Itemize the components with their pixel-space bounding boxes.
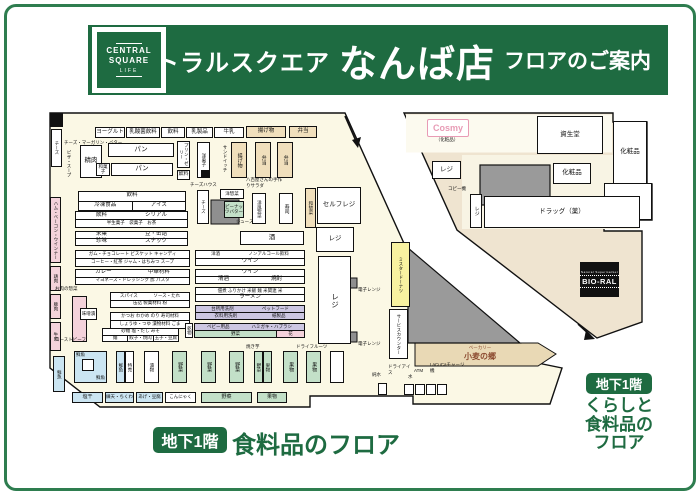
gondola-rice-crackers: 米菓豆・缶詰 珍味スナック <box>75 231 188 246</box>
label-copier: コピー機 <box>448 186 476 192</box>
label-atm: ATM <box>414 368 430 374</box>
food-floor-title: 食料品のフロア <box>232 425 462 455</box>
shelf-yogurt: ヨーグルト <box>95 127 125 138</box>
counter-western-deli: 洋惣菜 <box>220 189 244 199</box>
machine-charge <box>437 384 447 395</box>
fish-corner-notch <box>82 359 94 371</box>
gondola-drink-frozen: 飲料 冷凍食品アイス <box>78 191 186 211</box>
gondola-drink-cereal: 飲料シリアル 半生菓子 袋菓子 お茶 <box>75 211 188 228</box>
fixture-special-sale: 特売 <box>125 351 134 383</box>
mister-donut: ミスタードーナツ <box>391 242 410 307</box>
floor-guide-poster: セントラルスクエア なんば店 フロアのご案内 CENTRAL SQUARE LI… <box>0 0 700 495</box>
label-meat-deli: お肉の惣菜 <box>55 286 93 293</box>
label-handmade-salad: 八百屋さんの手作りサラダ <box>246 177 282 190</box>
checkout-upper: レジ <box>316 227 354 252</box>
checkout-living: レジ <box>432 161 461 179</box>
wall-ham-bacon: ハム・ベーコン・ウインナー <box>50 197 61 263</box>
fixture-japanese-deli: 和惣菜 <box>305 188 316 228</box>
fixture-wagashi: 和菓子 <box>96 163 110 176</box>
label-cosmy-sub: （化粧品） <box>427 137 467 144</box>
drug-store: ドラッグ（薬） <box>484 196 640 228</box>
wall-salted-dried: 塩干 <box>72 392 103 403</box>
label-microwave-2: 電子レンジ <box>358 341 390 347</box>
fixture-dried-fruit <box>330 351 344 383</box>
fixture-fruit-3: 果物 <box>306 351 321 383</box>
wall-pizza-soup: ピザ・スープ <box>61 150 72 196</box>
label-pure-water: 純水 <box>372 372 386 378</box>
fixture-bread-1: パン <box>108 143 174 157</box>
logo-line1: CENTRAL <box>106 46 151 56</box>
fixture-veg-3: 野菜 <box>229 351 244 383</box>
logo-rule-bottom <box>116 76 142 77</box>
gondola-liquor-nonalc: 洋酒ノンアルコール飲料 ワイン <box>195 250 305 266</box>
label-water: 水 <box>408 374 416 380</box>
shelf-dairy: 乳製品 <box>186 127 213 138</box>
label-sandwich: サンドイッチ <box>218 145 228 181</box>
shelf-drink: 飲料 <box>161 127 185 138</box>
gondola-wine-shochu: ワイン 清酒焼酎 <box>195 269 305 284</box>
wall-pork: 豚肉 <box>50 294 61 319</box>
fixture-sushi: 寿司 <box>279 193 293 224</box>
label-microwave-1: 電子レンジ <box>358 287 390 293</box>
gondola-sweets: ガム・チョコレート ビスケット キャンディ コーヒー・紅茶 ジャム・はちみつ ス… <box>75 250 190 267</box>
wall-fish: 鮮魚 <box>53 356 65 392</box>
fixture-bento-v1: 弁当 <box>255 142 271 178</box>
gondola-rice-ramen: 佃煮 ふりかけ 米飯 麺 米関連 米 ラーメン <box>195 287 305 302</box>
logo-rule-top <box>116 43 142 44</box>
fixture-western-deli-v: 洋風惣菜 <box>252 193 266 224</box>
machine-atm <box>415 384 425 395</box>
label-roast-beef: ローストビーフ <box>55 337 101 344</box>
checkout-main: レジ <box>318 256 351 344</box>
wall-konnyaku: こんにゃく <box>165 392 196 403</box>
machine-pure-water <box>378 383 387 395</box>
label-cheese-house: チーズハウス <box>190 182 232 189</box>
fixture-pickles: 漬物 <box>144 351 159 383</box>
gondola-sugar-miso: 砂糖 塩・だし みそ 麺餃子・焼肉玉子・豆腐 <box>102 328 179 342</box>
fixture-miso-marinated: 味噌漬 <box>80 308 97 320</box>
self-checkout: セルフレジ <box>317 187 361 224</box>
counter-bento: 弁当 <box>289 126 317 138</box>
cosmetics-east: 化粧品 <box>613 121 647 184</box>
fixture-veg-2: 野菜 <box>201 351 216 383</box>
fixture-bread-2: パン <box>111 163 173 176</box>
label-dried-fruit: ドライフルーツ <box>296 344 334 350</box>
fixture-fruit-2: 果物 <box>283 351 298 383</box>
fixture-pudding-jelly: プリン・ゼリー <box>177 141 190 168</box>
gondola-spice: スパイスソース・たれ 缶詰 製菓材料 粉 <box>110 292 190 308</box>
fixture-fried-v: 揚げ物 <box>231 142 247 178</box>
fixture-fruit-1: 果物 <box>263 351 272 383</box>
label-baked-sweet-potato: 焼き芋 <box>246 344 270 350</box>
gondola-dried-goods: 乾物 <box>185 323 193 338</box>
pillar-small <box>201 170 210 178</box>
counter-peanut-butter: ピーナッツバター <box>224 201 244 218</box>
counter-fried-food: 揚げ物 <box>246 126 286 138</box>
bioral-shop: Natural Supermarket BIO-RAL <box>580 262 619 297</box>
gondola-katsuo-nori: かつお わかめ のり 寿司材料 しょうゆ・つゆ 漬物材料 ごま <box>110 312 190 329</box>
living-floor-title: くらしと 食料品の フロア <box>566 397 672 455</box>
central-square-logo: CENTRAL SQUARE LIFE <box>92 27 166 93</box>
checkout-living-v: レジ <box>470 194 482 228</box>
machine-1 <box>404 384 414 395</box>
fixture-drink-small: 飲料 <box>177 170 190 180</box>
label-lacuca-charger: LaCuCaチャージ機 <box>430 362 468 374</box>
counter-cheese: チーズ <box>197 190 209 224</box>
fixture-fish-v: 鮮魚 <box>116 351 125 383</box>
shelf-milk: 牛乳 <box>214 127 244 138</box>
gondola-sake: 酒 <box>240 231 304 245</box>
living-floor-badge: 地下1階 <box>586 373 652 394</box>
gondola-curry: カレー中華材料 マヨネーズ・ドレッシング 酢 パスタ <box>75 269 190 285</box>
fixture-veg-1: 野菜 <box>172 351 187 383</box>
wall-fruit: 果物 <box>257 392 287 403</box>
shelf-lactic-drink: 乳酸菌飲料 <box>126 127 160 138</box>
logo-line3: LIFE <box>120 68 139 74</box>
cosmetics-mid: 化粧品 <box>553 163 591 184</box>
wall-veg: 野菜 <box>201 392 252 403</box>
cosmy-shop: Cosmy <box>427 119 469 137</box>
logo-line2: SQUARE <box>109 56 149 66</box>
gondola-detergent-pet: 台所用洗剤ペットフード 衣料用洗剤紙製品 <box>195 305 305 320</box>
wall-tofu: あげ・豆腐 <box>136 392 163 403</box>
food-floor-badge: 地下1階 <box>153 427 227 453</box>
fixture-bento-v2: 弁当 <box>277 142 293 178</box>
fixture-veg-4: 野菜 <box>254 351 263 383</box>
shiseido-corner: 資生堂 <box>537 116 603 154</box>
gondola-baby-veg: ベビー用品ハミガキ・ハブラシ 野菜花 <box>194 323 305 338</box>
service-counter: サービスカウンター <box>389 309 408 359</box>
machine-2 <box>426 384 436 395</box>
wall-fishcake: 練天・ちくわ <box>105 392 134 403</box>
